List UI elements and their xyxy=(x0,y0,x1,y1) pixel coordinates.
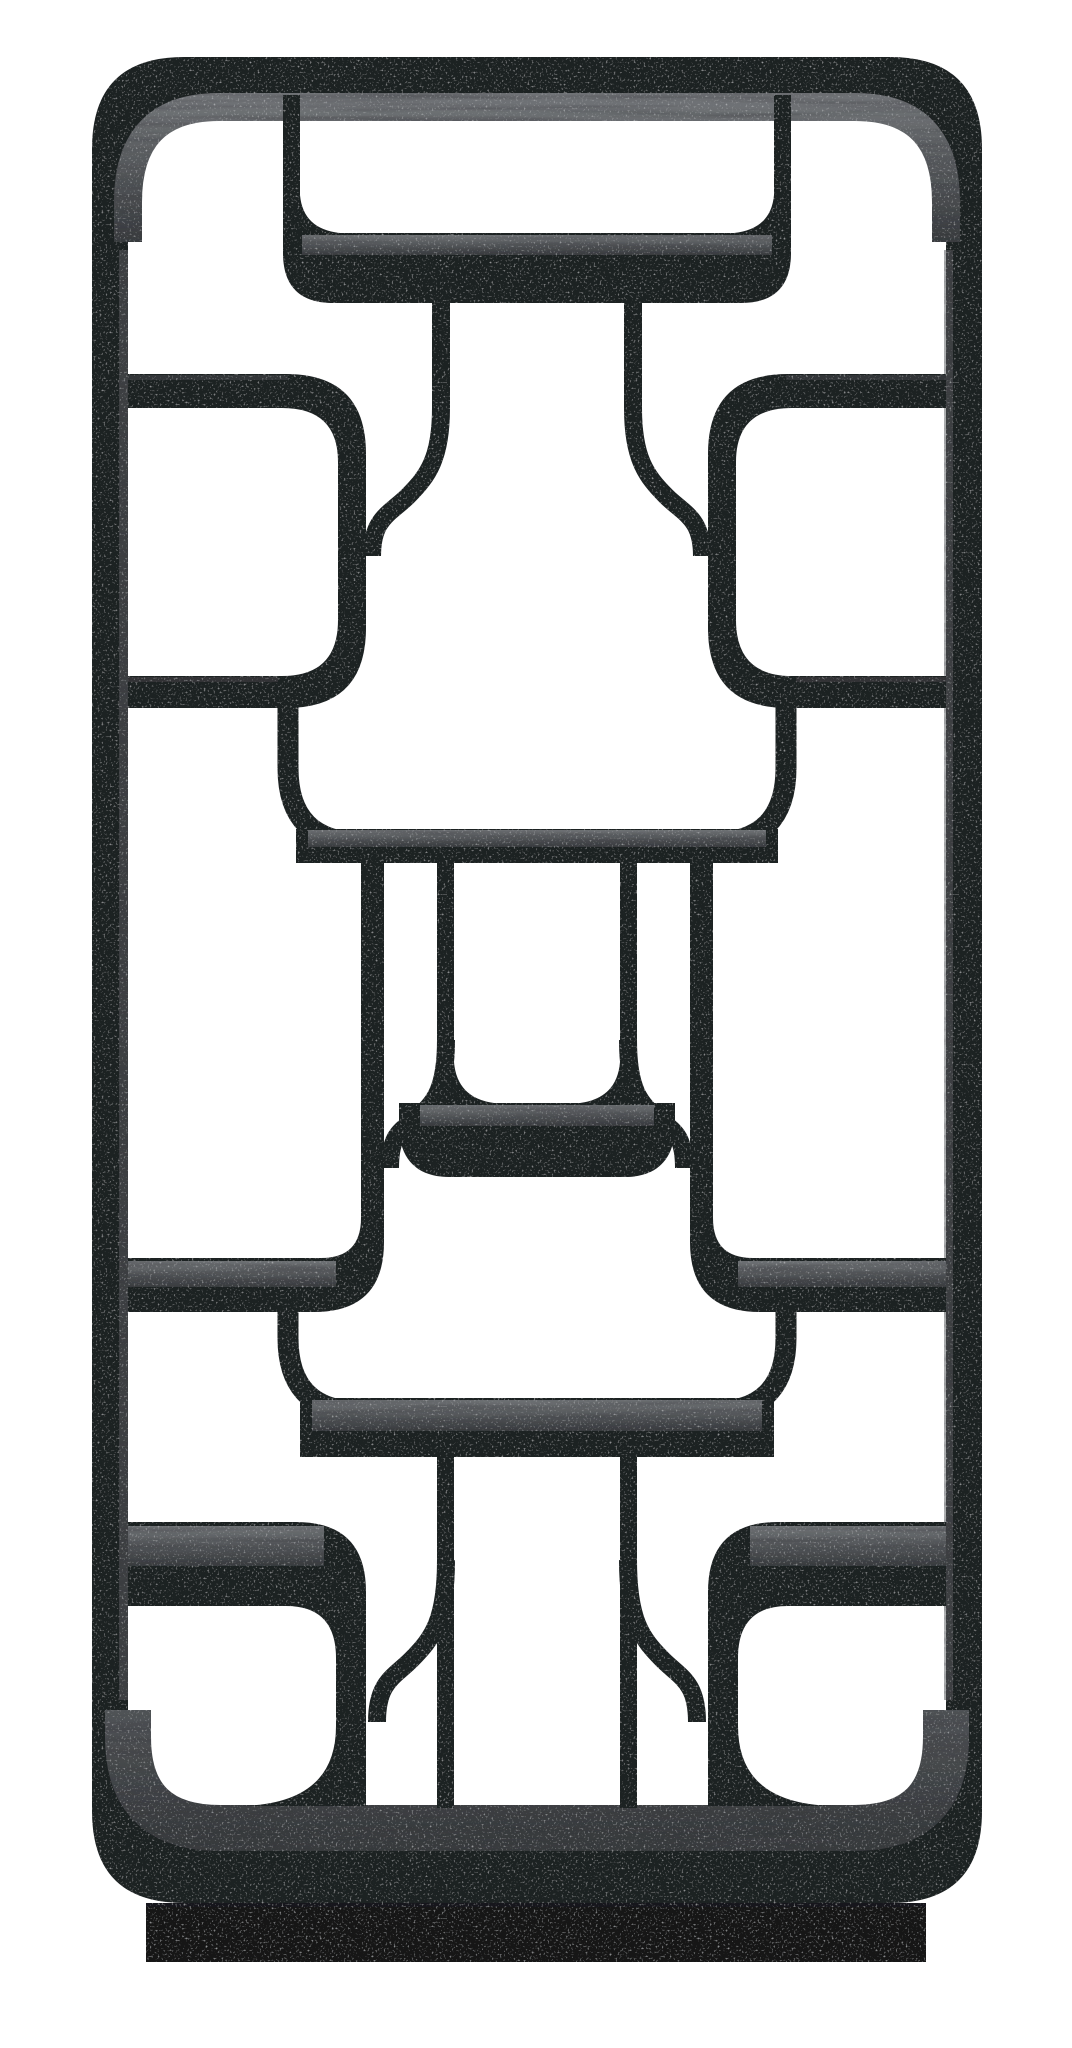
middle-hanging-channel-slab xyxy=(399,1103,675,1177)
plinth-base xyxy=(146,1903,926,1962)
center-slab-2-top-face xyxy=(308,830,766,847)
product-photo xyxy=(0,0,1072,2048)
frame-inner-left-sliver xyxy=(119,250,128,1700)
top-shelf-channel-slab xyxy=(283,233,791,303)
shelf5-top-face-left xyxy=(128,1526,324,1566)
center-slab-3-top-face xyxy=(420,1105,654,1126)
shelf2-top-edge-left xyxy=(128,677,278,682)
backdrop xyxy=(0,0,1072,2048)
page-background xyxy=(0,0,1072,2048)
plinth xyxy=(146,1903,926,1962)
center-slab-1-top-face xyxy=(302,235,772,255)
top-channel-post-left xyxy=(283,95,300,245)
shelf3-top-face-left xyxy=(128,1261,336,1287)
plinth-top-shadow-line xyxy=(146,1903,926,1907)
center-slab-4-top-face xyxy=(312,1400,762,1431)
center-shelf-2 xyxy=(296,829,778,863)
shelf1-top-edge-left xyxy=(128,375,288,380)
center-shelf-4 xyxy=(300,1398,774,1457)
etagere-illustration xyxy=(0,0,1072,2048)
frame-inner-right-sliver xyxy=(944,250,953,1700)
